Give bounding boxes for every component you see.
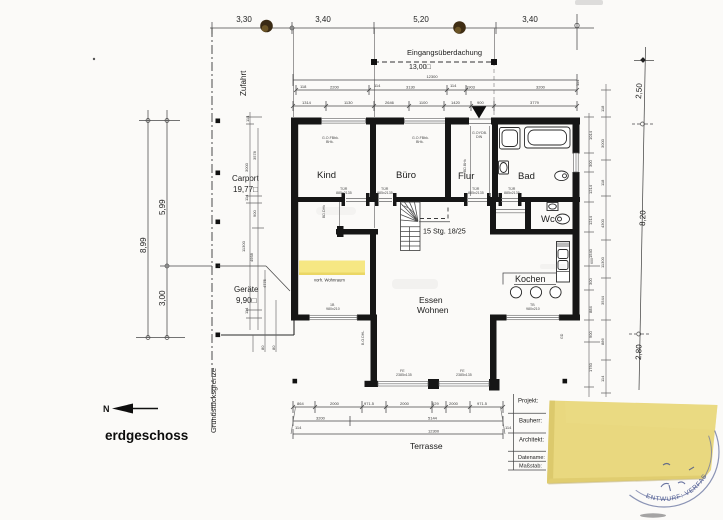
svg-text:885x2135: 885x2135 [468, 191, 484, 195]
svg-text:3,40: 3,40 [315, 15, 331, 24]
svg-text:900: 900 [588, 331, 593, 338]
svg-text:80: 80 [271, 345, 276, 350]
svg-text:1130: 1130 [344, 100, 353, 105]
svg-text:886: 886 [600, 338, 605, 345]
svg-text:9,90□: 9,90□ [236, 296, 257, 305]
svg-text:1903: 1903 [466, 85, 476, 90]
svg-text:2385x135: 2385x135 [456, 373, 472, 377]
svg-text:1100: 1100 [419, 100, 428, 105]
svg-text:114: 114 [505, 425, 512, 430]
svg-text:5,99: 5,99 [158, 199, 167, 215]
svg-text:Grundstücksgrenze: Grundstücksgrenze [209, 368, 218, 433]
svg-text:2200: 2200 [330, 85, 340, 90]
svg-text:Projekt:: Projekt: [518, 399, 539, 405]
svg-text:BHk.: BHk. [416, 140, 424, 144]
svg-text:DIN: DIN [476, 135, 483, 139]
svg-text:B.O.DHL: B.O.DHL [361, 331, 365, 345]
svg-text:5144: 5144 [428, 416, 438, 421]
svg-text:4300: 4300 [600, 218, 605, 228]
svg-text:Kind: Kind [317, 170, 336, 181]
svg-text:19,77□: 19,77□ [233, 185, 258, 194]
svg-text:11300: 11300 [241, 240, 246, 252]
svg-text:1540: 1540 [588, 248, 593, 258]
svg-text:3000: 3000 [600, 138, 605, 148]
svg-text:3578: 3578 [252, 150, 257, 160]
svg-text:885x2135: 885x2135 [336, 191, 352, 195]
svg-text:BHk.: BHk. [326, 140, 334, 144]
svg-text:Wc: Wc [541, 214, 555, 225]
svg-text:118: 118 [600, 179, 605, 186]
svg-text:4775: 4775 [262, 278, 267, 288]
svg-text:2,80: 2,80 [634, 344, 644, 360]
svg-text:980x210: 980x210 [326, 307, 340, 311]
svg-text:971.5: 971.5 [477, 401, 488, 406]
svg-text:3,40: 3,40 [522, 15, 538, 24]
svg-text:118: 118 [600, 105, 605, 112]
svg-text:114: 114 [600, 375, 605, 382]
svg-text:114: 114 [450, 83, 457, 88]
svg-text:15 Stg. 18/25: 15 Stg. 18/25 [423, 227, 466, 236]
svg-text:1214: 1214 [588, 184, 593, 194]
svg-text:12300: 12300 [428, 429, 440, 434]
svg-text:2385x1⁠35: 2385x1⁠35 [396, 373, 412, 377]
svg-text:900: 900 [252, 210, 257, 217]
svg-text:3544: 3544 [600, 295, 605, 305]
svg-text:Maßstab:: Maßstab: [519, 464, 542, 470]
svg-text:GD: GD [560, 333, 564, 339]
svg-text:Architekt:: Architekt: [519, 438, 544, 444]
svg-text:Wohnen: Wohnen [417, 305, 449, 315]
svg-text:114: 114 [244, 307, 249, 314]
svg-text:884: 884 [588, 306, 593, 313]
svg-text:114: 114 [244, 194, 249, 201]
svg-text:1750: 1750 [588, 362, 593, 372]
svg-text:900: 900 [477, 100, 484, 105]
svg-text:3,30: 3,30 [236, 15, 252, 24]
svg-text:8,20: 8,20 [638, 210, 648, 226]
svg-text:Zufahrt: Zufahrt [239, 70, 248, 96]
svg-text:1014: 1014 [588, 130, 593, 140]
svg-text:13,00□: 13,00□ [409, 64, 432, 71]
svg-text:1420: 1420 [451, 100, 461, 105]
svg-text:3779: 3779 [530, 100, 540, 105]
svg-text:80: 80 [260, 345, 265, 350]
svg-text:BD.BHk: BD.BHk [463, 159, 467, 172]
svg-text:Geräte: Geräte [234, 285, 259, 294]
svg-text:629: 629 [432, 401, 439, 406]
svg-text:Carport: Carport [232, 174, 259, 183]
svg-text:300: 300 [588, 160, 593, 167]
svg-text:3200: 3200 [316, 416, 326, 421]
svg-text:2000: 2000 [330, 401, 340, 406]
svg-text:114: 114 [295, 425, 302, 430]
svg-text:114: 114 [245, 115, 250, 122]
svg-text:3000: 3000 [244, 162, 249, 172]
svg-text:8,99: 8,99 [139, 237, 148, 253]
svg-text:4958: 4958 [249, 252, 254, 262]
svg-text:300: 300 [588, 278, 593, 285]
svg-text:2646: 2646 [385, 100, 395, 105]
svg-text:Essen: Essen [419, 295, 443, 305]
svg-text:864: 864 [297, 401, 304, 406]
svg-text:2,50: 2,50 [634, 82, 644, 99]
svg-text:2000: 2000 [449, 401, 459, 406]
svg-text:3200: 3200 [536, 85, 546, 90]
svg-text:2000: 2000 [400, 401, 410, 406]
svg-text:1214: 1214 [588, 215, 593, 225]
svg-text:885x2135: 885x2135 [504, 191, 520, 195]
svg-text:vorh. Wohnraum: vorh. Wohnraum [314, 278, 345, 283]
svg-text:Eingangsüberdachung: Eingangsüberdachung [407, 48, 482, 57]
svg-text:Kochen: Kochen [515, 274, 546, 284]
svg-text:Bad: Bad [518, 171, 535, 182]
svg-text:118: 118 [300, 84, 307, 89]
svg-text:114: 114 [374, 83, 381, 88]
svg-text:erdgeschoss: erdgeschoss [105, 428, 188, 443]
svg-text:114: 114 [575, 79, 580, 86]
svg-text:Büro: Büro [396, 170, 416, 181]
svg-text:971.5: 971.5 [364, 401, 375, 406]
svg-text:3,00: 3,00 [158, 290, 167, 306]
svg-text:885x2135: 885x2135 [377, 191, 393, 195]
svg-text:1314: 1314 [302, 100, 312, 105]
svg-text:12300: 12300 [426, 74, 438, 79]
svg-text:11300: 11300 [600, 256, 605, 268]
svg-text:Datename:: Datename: [518, 455, 545, 461]
svg-text:3130: 3130 [406, 85, 416, 90]
svg-text:N: N [103, 404, 110, 414]
svg-text:980x210: 980x210 [526, 307, 540, 311]
svg-text:Bauherr:: Bauherr: [519, 419, 542, 425]
svg-text:Terrasse: Terrasse [410, 441, 443, 451]
svg-text:5,20: 5,20 [413, 15, 429, 24]
